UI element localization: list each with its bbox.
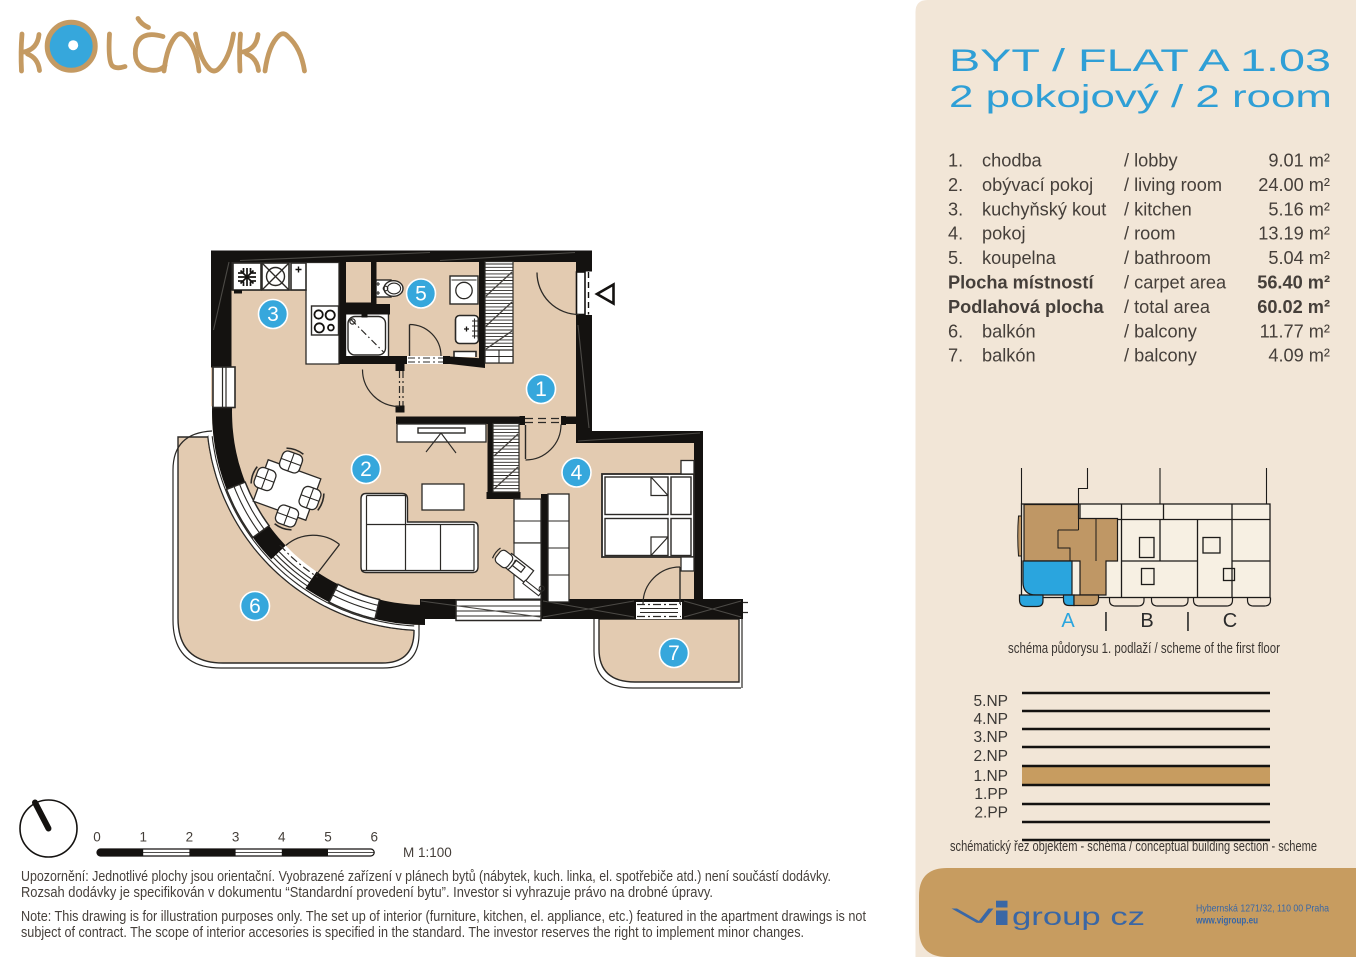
svg-text:13.19 m²: 13.19 m² xyxy=(1258,224,1330,244)
svg-text:Rozsah dodávky je specifikován: Rozsah dodávky je specifikován v dokumen… xyxy=(21,884,713,901)
svg-text:chodba: chodba xyxy=(982,151,1043,171)
svg-text:7.: 7. xyxy=(948,346,963,366)
svg-text:/ balcony: / balcony xyxy=(1124,321,1198,341)
svg-text:4.: 4. xyxy=(948,224,963,244)
svg-text:1: 1 xyxy=(139,830,147,845)
svg-text:www.vigroup.eu: www.vigroup.eu xyxy=(1195,915,1258,927)
svg-text:56.40 m²: 56.40 m² xyxy=(1257,273,1330,293)
svg-text:schéma půdorysu 1. podlaží / s: schéma půdorysu 1. podlaží / scheme of t… xyxy=(1008,640,1280,657)
svg-text:60.02 m²: 60.02 m² xyxy=(1257,297,1330,317)
svg-text:2.: 2. xyxy=(948,175,963,195)
svg-text:group cz: group cz xyxy=(1012,903,1145,931)
svg-text:Note: This drawing is for illu: Note: This drawing is for illustration p… xyxy=(21,908,867,925)
svg-text:24.00 m²: 24.00 m² xyxy=(1258,175,1330,195)
svg-text:3: 3 xyxy=(232,830,240,845)
svg-text:|: | xyxy=(1103,610,1108,632)
svg-text:balkón: balkón xyxy=(982,346,1036,366)
svg-text:3: 3 xyxy=(267,303,279,326)
svg-text:11.77 m²: 11.77 m² xyxy=(1260,321,1330,341)
svg-text:Podlahová plocha: Podlahová plocha xyxy=(948,297,1105,317)
svg-text:balkón: balkón xyxy=(982,321,1036,341)
svg-text:2: 2 xyxy=(360,458,372,481)
svg-text:subject of contract. The scope: subject of contract. The scope of interi… xyxy=(21,924,804,941)
svg-text:7: 7 xyxy=(668,642,680,665)
svg-text:Hybernská 1271/32, 110 00 Prah: Hybernská 1271/32, 110 00 Praha xyxy=(1196,903,1329,915)
svg-text:5.NP: 5.NP xyxy=(974,693,1008,710)
svg-text:/ kitchen: / kitchen xyxy=(1124,199,1192,219)
svg-text:4.NP: 4.NP xyxy=(974,711,1008,728)
svg-text:5.: 5. xyxy=(948,248,963,268)
svg-text:2: 2 xyxy=(186,830,194,845)
svg-text:4: 4 xyxy=(571,462,583,485)
svg-text:5.16 m²: 5.16 m² xyxy=(1268,199,1330,219)
svg-text:2 pokojový / 2 room: 2 pokojový / 2 room xyxy=(949,78,1332,114)
svg-text:/ balcony: / balcony xyxy=(1124,346,1198,366)
svg-text:5: 5 xyxy=(324,830,332,845)
svg-text:1: 1 xyxy=(535,378,547,401)
svg-text:/ room: / room xyxy=(1124,224,1176,244)
svg-text:5: 5 xyxy=(415,283,427,306)
svg-text:pokoj: pokoj xyxy=(982,224,1025,244)
svg-text:3.NP: 3.NP xyxy=(974,729,1008,746)
svg-text:kuchyňský kout: kuchyňský kout xyxy=(982,199,1106,219)
svg-text:2.PP: 2.PP xyxy=(974,805,1008,822)
svg-text:A: A xyxy=(1061,610,1075,632)
svg-text:3.: 3. xyxy=(948,199,963,219)
svg-text:B: B xyxy=(1140,610,1153,632)
svg-text:6: 6 xyxy=(370,830,378,845)
svg-text:/ lobby: / lobby xyxy=(1124,151,1178,171)
svg-text:/ carpet area: / carpet area xyxy=(1124,273,1227,293)
svg-text:Upozornění: Jednotlivé plochy: Upozornění: Jednotlivé plochy jsou orien… xyxy=(21,868,831,885)
svg-text:5.04 m²: 5.04 m² xyxy=(1268,248,1330,268)
svg-text:|: | xyxy=(1185,610,1190,632)
svg-text:1.NP: 1.NP xyxy=(974,768,1008,785)
svg-text:6.: 6. xyxy=(948,321,963,341)
svg-text:1.PP: 1.PP xyxy=(974,786,1008,803)
svg-text:M 1:100: M 1:100 xyxy=(403,845,452,860)
svg-text:0: 0 xyxy=(93,830,101,845)
svg-text:koupelna: koupelna xyxy=(982,248,1057,268)
svg-text:9.01 m²: 9.01 m² xyxy=(1268,151,1330,171)
svg-text:/ total area: / total area xyxy=(1124,297,1211,317)
svg-text:BYT / FLAT A 1.03: BYT / FLAT A 1.03 xyxy=(949,42,1331,78)
svg-text:6: 6 xyxy=(249,595,261,618)
svg-text:4.09 m²: 4.09 m² xyxy=(1268,346,1330,366)
svg-text:1.: 1. xyxy=(948,151,963,171)
svg-text:2.NP: 2.NP xyxy=(974,748,1008,765)
svg-text:schématický řez objektem - sch: schématický řez objektem - schéma / conc… xyxy=(950,838,1317,855)
svg-text:4: 4 xyxy=(278,830,286,845)
svg-text:obývací pokoj: obývací pokoj xyxy=(982,175,1093,195)
svg-text:Plocha místností: Plocha místností xyxy=(948,273,1094,293)
svg-text:/ bathroom: / bathroom xyxy=(1124,248,1211,268)
svg-text:/ living room: / living room xyxy=(1124,175,1222,195)
svg-text:C: C xyxy=(1223,610,1237,632)
